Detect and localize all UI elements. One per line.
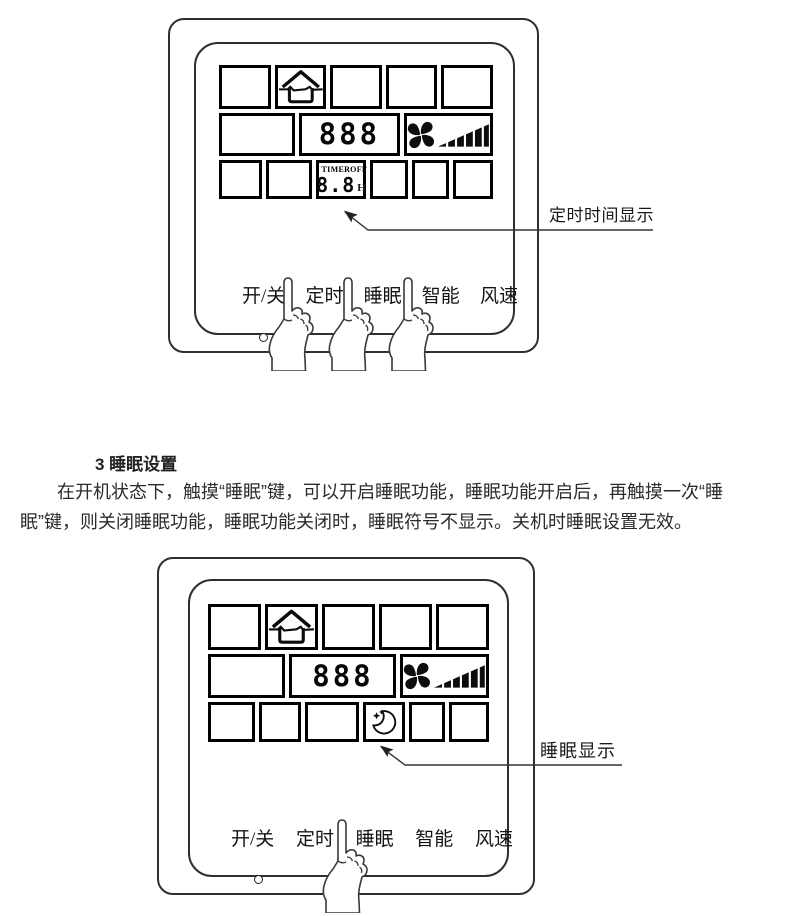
- section-body: 在开机状态下，触摸“睡眠”键，可以开启睡眠功能，睡眠功能开启后，再触摸一次“睡 …: [20, 477, 772, 537]
- lcd-cell: [412, 160, 449, 199]
- lcd-cell: [453, 160, 493, 199]
- lcd-display: 888 TIMER OFF: [219, 65, 493, 203]
- lcd-cell: [265, 604, 318, 650]
- lcd-cell: [386, 65, 438, 109]
- lcd-cell: [409, 702, 445, 742]
- sleep-display-label: 睡眠显示: [540, 737, 616, 763]
- temperature-digits: 888: [312, 662, 373, 691]
- fan-speed-bars-icon: [438, 121, 490, 149]
- lcd-cell: [330, 65, 382, 109]
- lcd-fan-cell: [400, 654, 489, 698]
- timer-hours-digits: 8.8: [316, 175, 355, 195]
- lcd-row-3: [208, 702, 489, 742]
- lcd-cell: [275, 65, 327, 109]
- lcd-row-1: [208, 604, 489, 650]
- lcd-timer-cell: TIMER OFF 8.8 H: [316, 160, 367, 199]
- lcd-cell: [436, 604, 489, 650]
- pointing-hand: [318, 275, 376, 371]
- fan-speed-bars-icon: [434, 662, 486, 690]
- lcd-cell: [259, 702, 301, 742]
- lcd-row-1: [219, 65, 493, 109]
- lcd-cell: [208, 654, 285, 698]
- lcd-row-2: 888: [208, 654, 489, 698]
- touch-key-row: 开/关 定时 睡眠 智能 风速: [231, 824, 513, 851]
- lcd-cell: [379, 604, 432, 650]
- house-airflow-icon: [268, 607, 315, 647]
- lcd-cell: [305, 702, 359, 742]
- fanspeed-key[interactable]: 风速: [475, 824, 513, 851]
- lcd-cell: [322, 604, 375, 650]
- fan-blades-icon: [407, 121, 435, 149]
- section-heading: 3 睡眠设置: [95, 450, 177, 475]
- lcd-cell: [208, 604, 261, 650]
- lcd-row-2: 888: [219, 113, 493, 156]
- fan-blades-icon: [403, 662, 431, 690]
- lcd-temp-cell: 888: [289, 654, 396, 698]
- lcd-cell: [219, 113, 295, 156]
- lcd-temp-cell: 888: [299, 113, 401, 156]
- body-line: 眠”键，则关闭睡眠功能，睡眠功能关闭时，睡眠符号不显示。关机时睡眠设置无效。: [20, 507, 772, 537]
- timer-display-label: 定时时间显示: [549, 201, 654, 226]
- temperature-digits: 888: [319, 120, 380, 149]
- fanspeed-key[interactable]: 风速: [480, 281, 518, 308]
- lcd-cell: [441, 65, 493, 109]
- lcd-sleep-cell: [363, 702, 405, 742]
- timer-hours-unit: H: [357, 182, 366, 195]
- smart-key[interactable]: 智能: [415, 824, 453, 851]
- lcd-cell: [370, 160, 408, 199]
- timer-value-row: 8.8 H: [316, 175, 366, 195]
- power-led-dot: [254, 875, 263, 884]
- house-airflow-icon: [278, 67, 324, 107]
- lcd-cell: [219, 160, 262, 199]
- body-line: 在开机状态下，触摸“睡眠”键，可以开启睡眠功能，睡眠功能开启后，再触摸一次“睡: [20, 477, 772, 507]
- lcd-display: 888: [208, 604, 489, 746]
- pointing-hand: [258, 275, 316, 371]
- lcd-cell: [219, 65, 271, 109]
- pointing-hand: [312, 817, 370, 913]
- power-key[interactable]: 开/关: [231, 824, 274, 851]
- lcd-fan-cell: [404, 113, 493, 156]
- manual-page: 888 TIMER OFF: [0, 0, 790, 916]
- lcd-row-3: TIMER OFF 8.8 H: [219, 160, 493, 199]
- lcd-cell: [449, 702, 489, 742]
- sleep-moon-icon: [370, 708, 398, 736]
- pointing-hand: [378, 275, 436, 371]
- lcd-cell: [266, 160, 312, 199]
- lcd-cell: [208, 702, 255, 742]
